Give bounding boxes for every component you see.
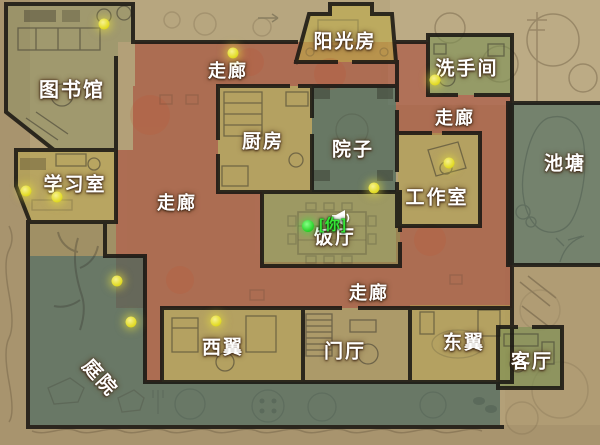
player-you-tag: [你] bbox=[319, 214, 347, 235]
mansion-map: 图书馆学习室走廊阳光房洗手间走廊厨房院子池塘工作室走廊饭厅走廊庭院西翼门厅东翼客… bbox=[0, 0, 600, 445]
map-canvas bbox=[0, 0, 600, 445]
zone-living bbox=[498, 327, 562, 388]
zone-pond bbox=[508, 103, 600, 265]
player-position-dot bbox=[302, 220, 314, 232]
zone-foyer bbox=[303, 308, 410, 382]
